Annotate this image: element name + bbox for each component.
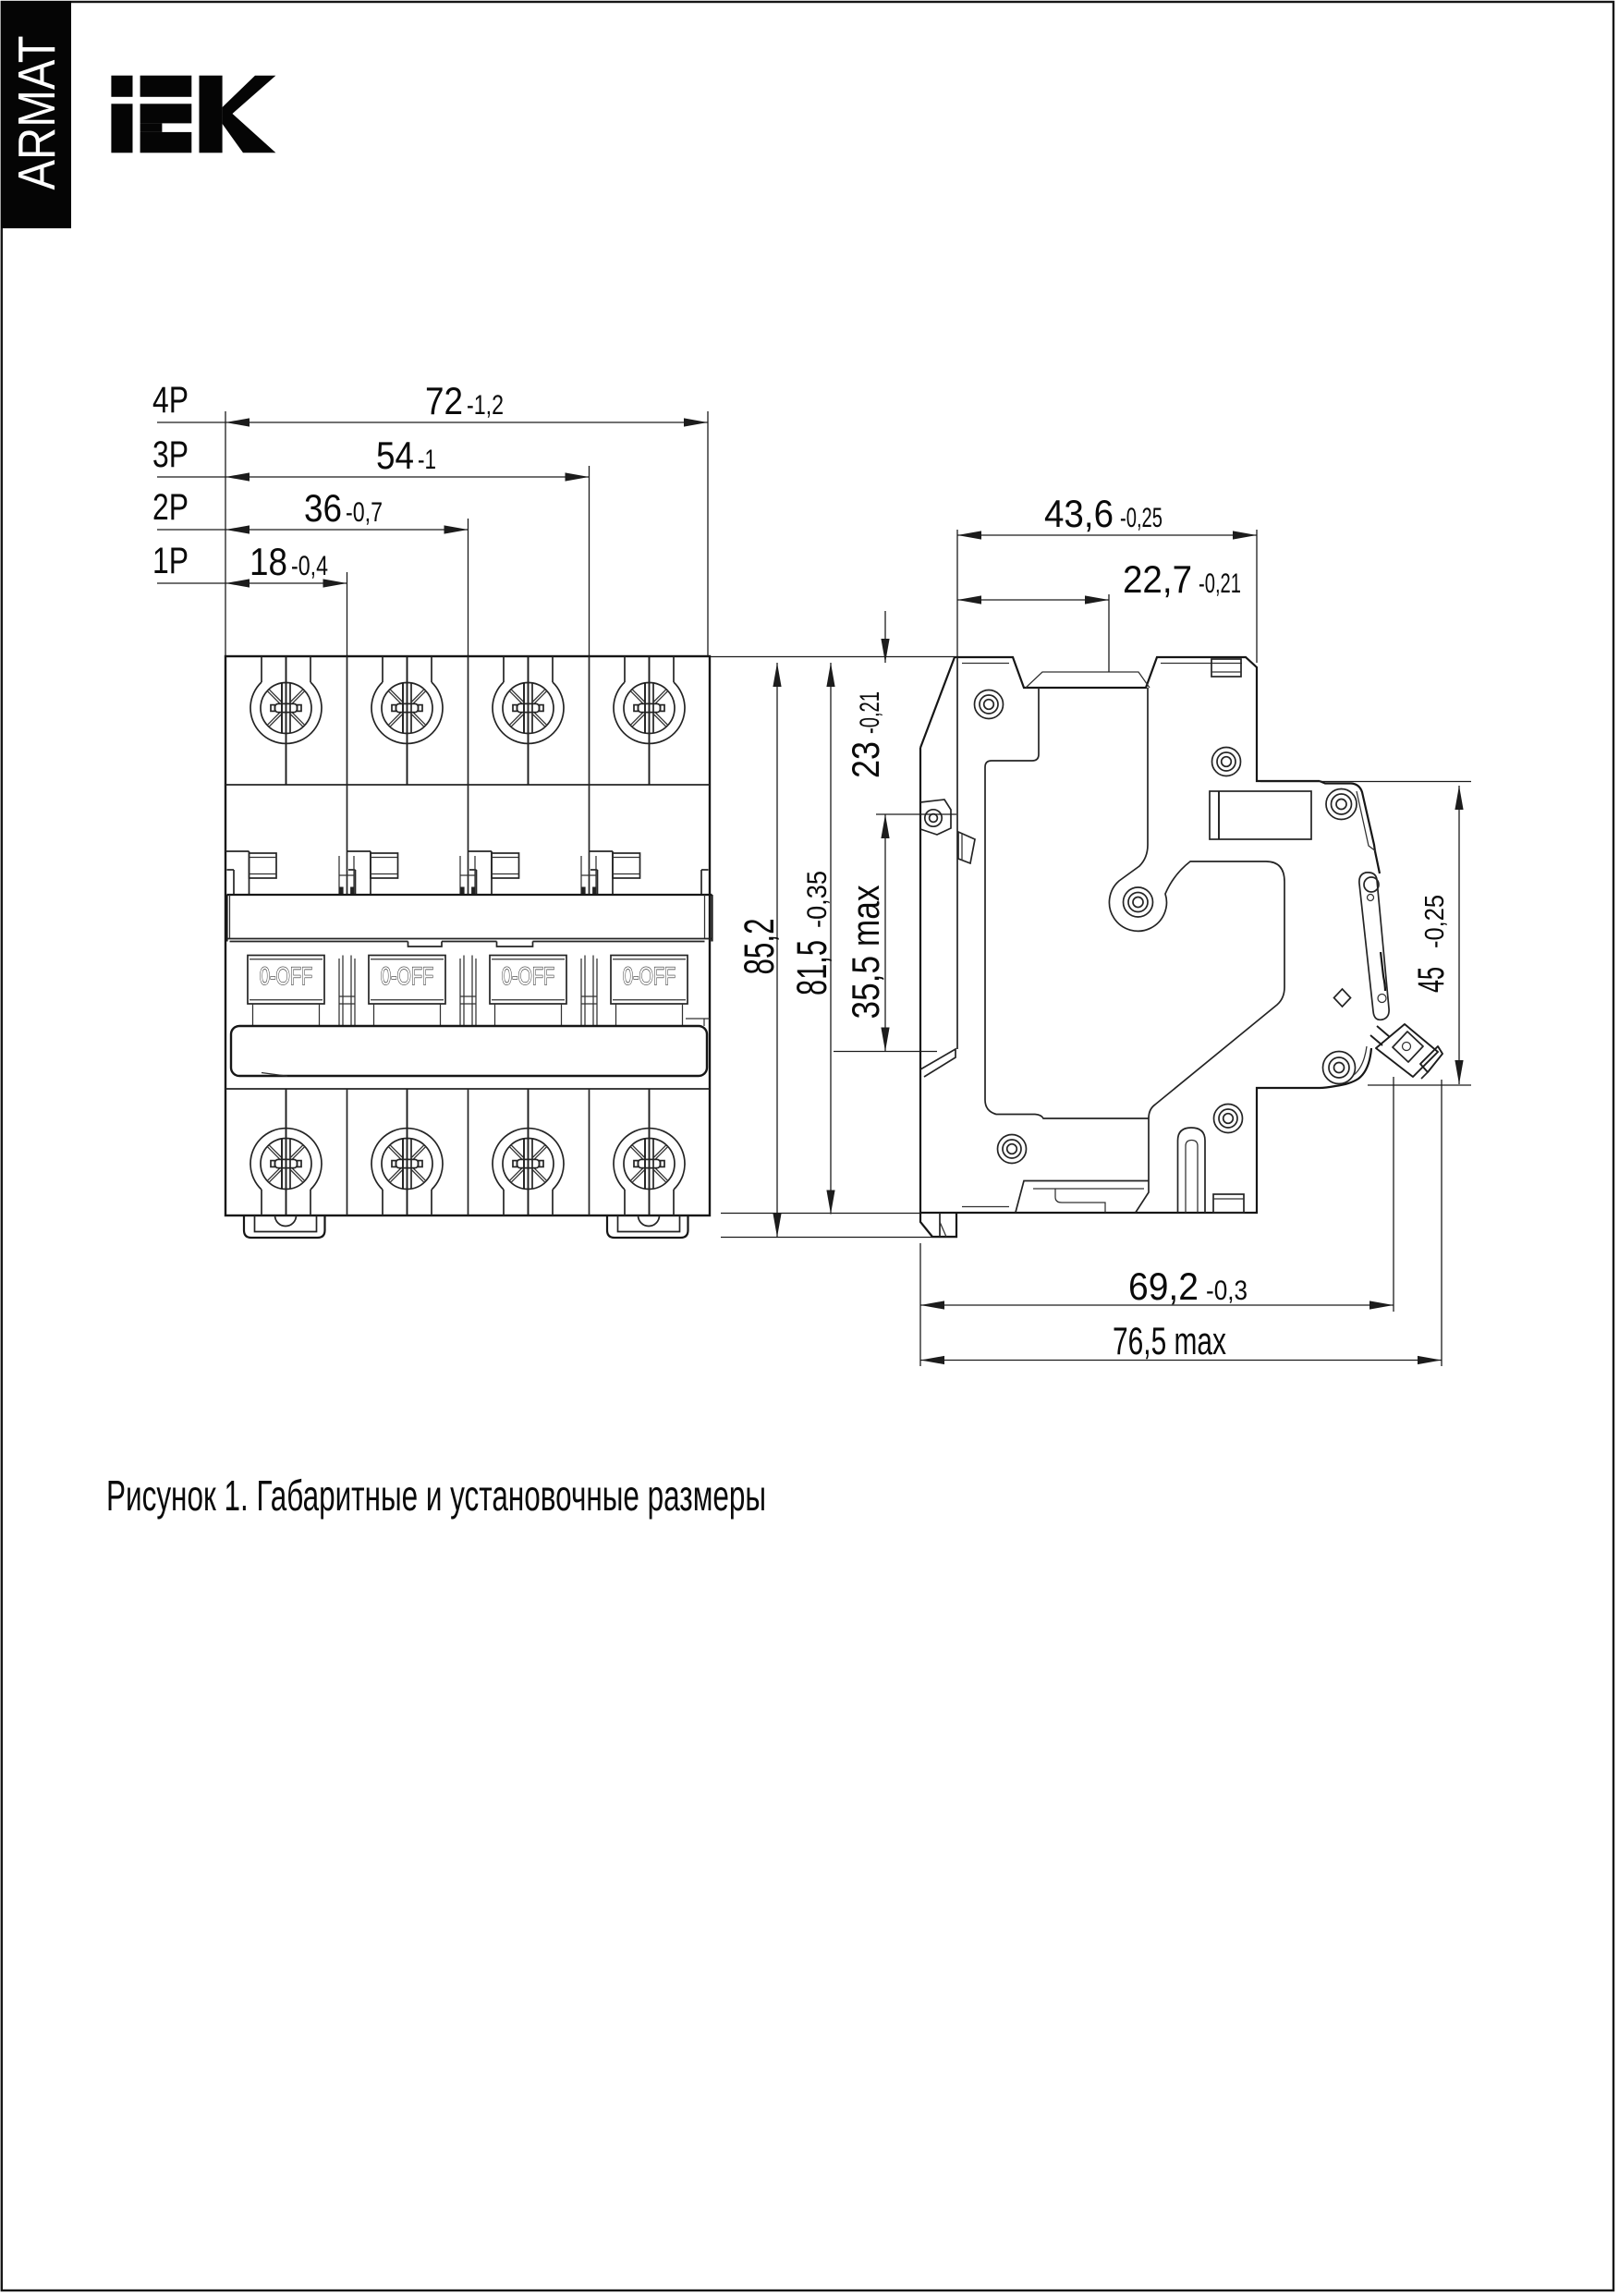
svg-text:ARMAT: ARMAT xyxy=(7,36,67,190)
svg-text:-0,21: -0,21 xyxy=(1199,568,1241,599)
svg-text:-0,7: -0,7 xyxy=(346,497,383,528)
svg-text:-0,3: -0,3 xyxy=(1206,1276,1248,1306)
svg-text:0-OFF: 0-OFF xyxy=(502,962,554,990)
svg-text:76,5 max: 76,5 max xyxy=(1113,1319,1226,1362)
svg-text:-1: -1 xyxy=(418,445,436,475)
svg-text:3P: 3P xyxy=(152,434,189,475)
svg-text:-1,2: -1,2 xyxy=(467,390,504,421)
svg-text:85,2: 85,2 xyxy=(736,919,783,975)
svg-text:54: 54 xyxy=(376,434,414,477)
svg-text:0-OFF: 0-OFF xyxy=(260,962,312,990)
svg-text:36: 36 xyxy=(304,486,342,530)
svg-text:Рисунок 1. Габаритные и устано: Рисунок 1. Габаритные и установочные раз… xyxy=(106,1472,766,1520)
svg-text:18: 18 xyxy=(250,540,287,583)
svg-text:45: 45 xyxy=(1411,967,1452,993)
svg-text:0-OFF: 0-OFF xyxy=(623,962,676,990)
svg-text:35,5 max: 35,5 max xyxy=(844,885,887,1020)
svg-text:69,2: 69,2 xyxy=(1128,1264,1199,1308)
svg-text:81,5: 81,5 xyxy=(788,940,835,995)
svg-text:4P: 4P xyxy=(152,380,189,421)
svg-text:-0,21: -0,21 xyxy=(855,691,885,734)
svg-text:72: 72 xyxy=(425,379,463,422)
svg-text:0-OFF: 0-OFF xyxy=(381,962,433,990)
svg-text:22,7: 22,7 xyxy=(1123,557,1192,601)
svg-text:23: 23 xyxy=(844,741,887,778)
svg-text:1P: 1P xyxy=(152,541,189,581)
svg-text:-0,35: -0,35 xyxy=(802,871,833,928)
svg-text:-0,4: -0,4 xyxy=(291,551,328,581)
svg-text:-0,25: -0,25 xyxy=(1420,895,1450,948)
svg-text:2P: 2P xyxy=(152,487,189,528)
svg-text:-0,25: -0,25 xyxy=(1120,503,1163,533)
svg-text:43,6: 43,6 xyxy=(1044,492,1114,535)
